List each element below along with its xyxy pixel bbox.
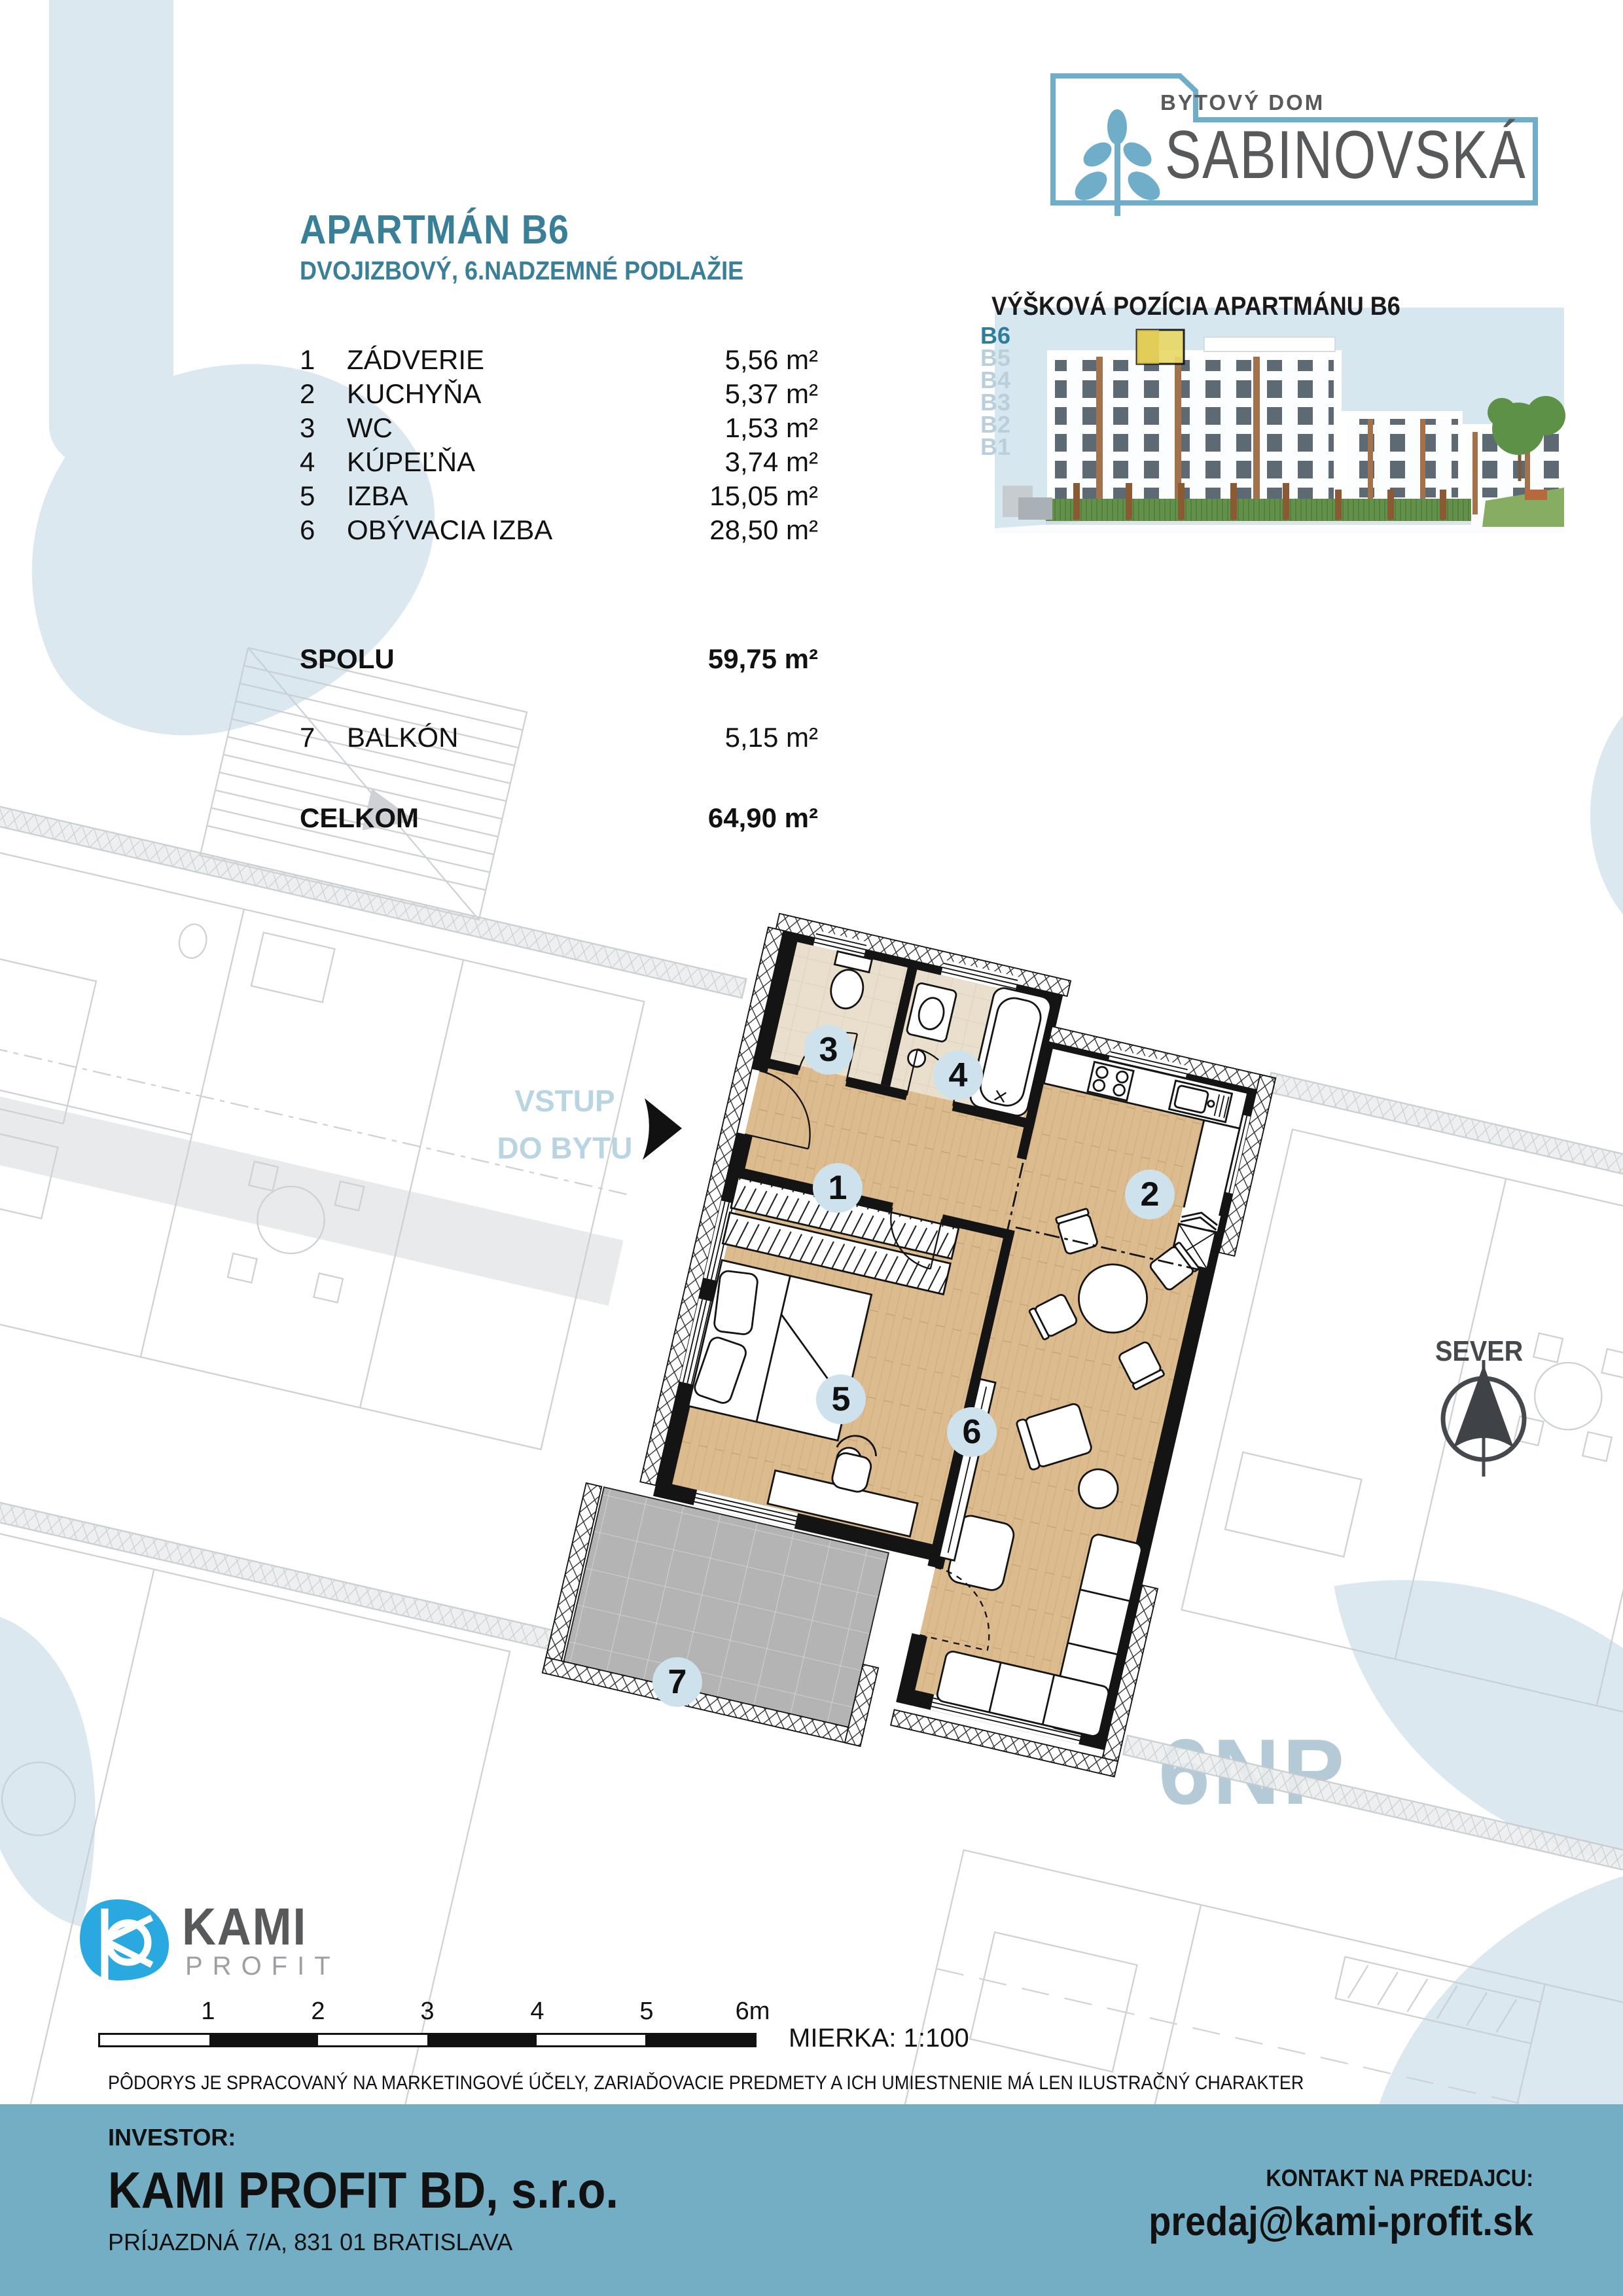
floor-label-b1: B1 <box>948 436 1010 458</box>
table-row: 3WC1,53 m² <box>300 411 818 445</box>
page-subtitle: DVOJIZBOVÝ, 6.NADZEMNÉ PODLAŽIE <box>300 257 793 286</box>
contact-email-link[interactable]: predaj@kami-profit.sk <box>1106 2198 1533 2245</box>
table-row: 6OBÝVACIA IZBA28,50 m² <box>300 513 818 547</box>
investor-name: KAMI PROFIT BD, s.r.o. <box>108 2161 675 2220</box>
page-title: APARTMÁN B6 <box>300 207 599 253</box>
apartment-floor-plan <box>543 900 1287 1803</box>
investor-label: INVESTOR: <box>108 2124 236 2151</box>
table-row: 4KÚPEĽŇA3,74 m² <box>300 445 818 479</box>
scale-tick: 5 <box>639 1998 653 2026</box>
elevation-rendering <box>995 308 1565 533</box>
scale-tick: 6m <box>736 1998 770 2026</box>
entry-label: VSTUP DO BYTU <box>496 1077 633 1172</box>
north-label: SEVER <box>1431 1335 1538 1368</box>
floor-label-b2: B2 <box>948 414 1010 436</box>
floor-label-b4: B4 <box>948 369 1010 391</box>
room-marker-1: 1 <box>813 1163 863 1213</box>
scale-tick: 3 <box>420 1998 434 2026</box>
contact-label: KONTAKT NA PREDAJCU: <box>1236 2164 1533 2192</box>
total-row-spolu: SPOLU59,75 m² <box>300 642 818 676</box>
north-compass-icon <box>1443 1360 1524 1477</box>
table-row: 2KUCHYŇA5,37 m² <box>300 377 818 411</box>
plant-icon <box>1069 109 1165 216</box>
disclaimer: PÔDORYS JE SPRACOVANÝ NA MARKETINGOVÉ ÚČ… <box>108 2072 1436 2094</box>
elevation-floor-labels: B6 B5 B4 B3 B2 B1 <box>948 325 1010 458</box>
room-marker-4: 4 <box>933 1050 983 1100</box>
floor-label-b6: B6 <box>948 325 1010 347</box>
total-row-celkom: CELKOM64,90 m² <box>300 801 818 835</box>
table-row: 1ZÁDVERIE5,56 m² <box>300 343 818 377</box>
floor-label-b5: B5 <box>948 347 1010 369</box>
room-marker-5: 5 <box>816 1374 866 1424</box>
room-marker-2: 2 <box>1125 1170 1175 1219</box>
scale-tick: 2 <box>311 1998 325 2026</box>
project-logo: BYTOVÝ DOM SABINOVSKÁ <box>1050 73 1538 208</box>
balcony-row: 7BALKÓN5,15 m² <box>300 721 818 755</box>
room-marker-6: 6 <box>947 1407 997 1457</box>
investor-address: PRÍJAZDNÁ 7/A, 831 01 BRATISLAVA <box>108 2229 512 2256</box>
footer-band: INVESTOR: KAMI PROFIT BD, s.r.o. PRÍJAZD… <box>0 2104 1623 2296</box>
scale-ratio: MIERKA: 1:100 <box>789 2024 969 2053</box>
scale-bar <box>98 2033 757 2047</box>
kami-logo-icon <box>80 1899 169 1981</box>
brand-sub: PROFIT <box>185 1952 340 1981</box>
room-table: 1ZÁDVERIE5,56 m² 2KUCHYŇA5,37 m² 3WC1,53… <box>300 343 818 547</box>
room-marker-7: 7 <box>652 1657 702 1707</box>
brochure-page: 6NP <box>0 0 1623 2296</box>
scale-tick: 4 <box>530 1998 544 2026</box>
table-row: 5IZBA15,05 m² <box>300 479 818 513</box>
floor-label-b3: B3 <box>948 391 1010 414</box>
entry-arrow-icon <box>643 1098 682 1160</box>
apartment-highlight-box <box>1137 330 1184 364</box>
elevation-title: VÝŠKOVÁ POZÍCIA APARTMÁNU B6 <box>991 292 1446 321</box>
logo-brand-top: BYTOVÝ DOM <box>1160 90 1325 115</box>
brand-name: KAMI <box>182 1897 321 1957</box>
room-marker-3: 3 <box>804 1025 853 1075</box>
logo-brand-name: SABINOVSKÁ <box>1165 117 1526 194</box>
scale-tick: 1 <box>201 1998 215 2026</box>
